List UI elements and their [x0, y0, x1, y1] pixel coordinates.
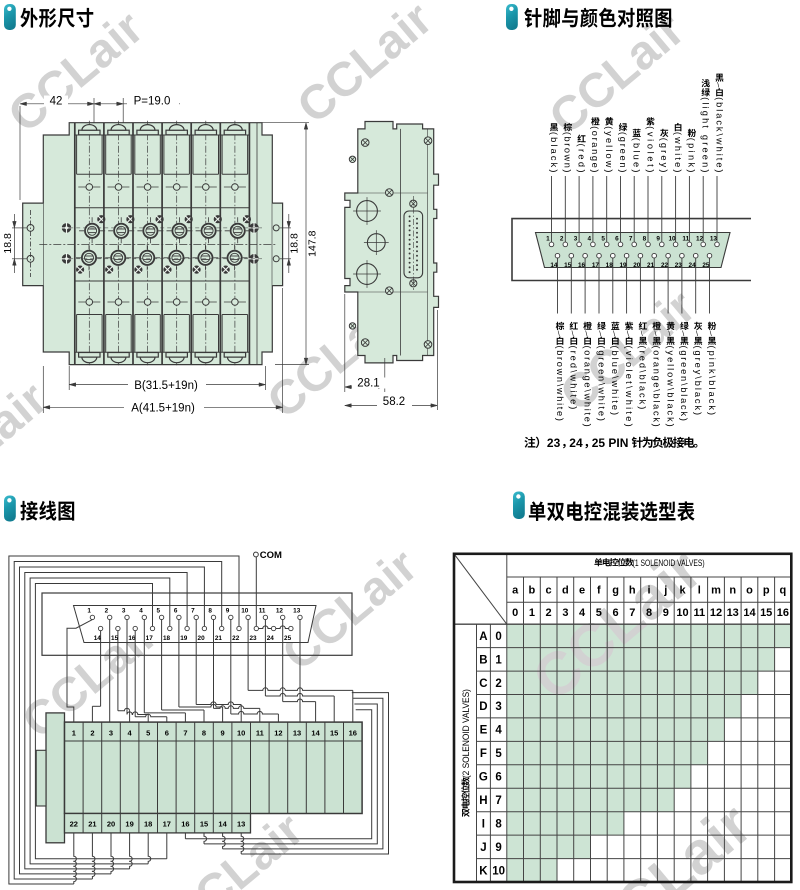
svg-text:(black\white): (black\white): [714, 97, 724, 172]
svg-text:o: o: [746, 585, 753, 597]
svg-text:B: B: [479, 654, 487, 666]
svg-text:28.1: 28.1: [357, 378, 379, 390]
svg-text:11: 11: [682, 236, 689, 243]
svg-text:5: 5: [601, 236, 605, 243]
svg-text:6: 6: [165, 729, 169, 738]
svg-text:(grey): (grey): [659, 138, 669, 173]
svg-text:21: 21: [88, 820, 96, 829]
svg-text:b: b: [529, 585, 536, 597]
svg-text:(grey\black): (grey\black): [693, 346, 703, 416]
svg-text:5: 5: [157, 608, 161, 615]
svg-text:C: C: [479, 678, 487, 690]
svg-text:3: 3: [562, 607, 568, 619]
svg-text:20: 20: [198, 635, 206, 642]
svg-text:15: 15: [564, 262, 572, 269]
svg-text:24: 24: [569, 436, 583, 450]
svg-text:3: 3: [574, 236, 578, 243]
svg-text:13: 13: [237, 820, 245, 829]
svg-text:(orange): (orange): [590, 126, 600, 172]
svg-text:8: 8: [646, 607, 652, 619]
svg-text:16: 16: [349, 729, 357, 738]
svg-text:14: 14: [550, 262, 558, 269]
svg-text:j: j: [663, 585, 667, 597]
svg-text:16: 16: [128, 635, 136, 642]
svg-text:I: I: [482, 818, 485, 830]
svg-text:15: 15: [200, 820, 208, 829]
svg-text:(red\black): (red\black): [638, 346, 648, 410]
svg-text:9: 9: [495, 842, 501, 854]
svg-text:a: a: [512, 585, 519, 597]
svg-text:P=19.0: P=19.0: [134, 95, 171, 107]
svg-text:15: 15: [760, 607, 772, 619]
svg-text:1: 1: [495, 654, 502, 666]
svg-text:7: 7: [183, 729, 187, 738]
svg-text:c: c: [546, 585, 552, 597]
svg-text:14: 14: [743, 607, 756, 619]
svg-text:15: 15: [111, 635, 119, 642]
svg-text:2: 2: [105, 608, 109, 615]
svg-text:A: A: [479, 631, 487, 643]
svg-text:d: d: [562, 585, 569, 597]
svg-text:23: 23: [249, 635, 257, 642]
svg-text:9: 9: [226, 608, 230, 615]
svg-text:CCLair: CCLair: [288, 0, 443, 134]
svg-text:6: 6: [495, 772, 501, 784]
svg-text:g: g: [612, 585, 619, 597]
svg-text:6: 6: [613, 607, 619, 619]
svg-text:H: H: [479, 795, 487, 807]
svg-text:0: 0: [495, 631, 501, 643]
svg-text:12: 12: [696, 236, 704, 243]
svg-text:23: 23: [675, 262, 683, 269]
svg-text:(pink): (pink): [687, 138, 697, 173]
svg-text:13: 13: [727, 607, 739, 619]
svg-text:CCLair: CCLair: [0, 1, 153, 143]
svg-text:12: 12: [274, 729, 282, 738]
svg-text:(white): (white): [673, 132, 683, 173]
svg-text:l: l: [698, 585, 701, 597]
svg-text:14: 14: [218, 820, 227, 829]
svg-text:1: 1: [87, 608, 91, 615]
svg-text:2: 2: [546, 607, 552, 619]
svg-text:19: 19: [180, 635, 188, 642]
svg-text:22: 22: [232, 635, 240, 642]
svg-text:m: m: [711, 585, 721, 597]
svg-text:q: q: [780, 585, 787, 597]
svg-text:18.8: 18.8: [289, 233, 301, 254]
svg-text:16: 16: [181, 820, 189, 829]
svg-text:11: 11: [693, 607, 705, 619]
svg-text:16: 16: [578, 262, 586, 269]
svg-text:14: 14: [94, 635, 102, 642]
svg-text:17: 17: [163, 820, 171, 829]
svg-text:19: 19: [619, 262, 627, 269]
svg-text:4: 4: [495, 725, 502, 737]
svg-text:25: 25: [284, 635, 292, 642]
svg-text:1: 1: [546, 236, 550, 243]
svg-text:(orange\black): (orange\black): [652, 346, 662, 427]
svg-text:12: 12: [710, 607, 722, 619]
svg-text:D: D: [479, 701, 487, 713]
svg-text:(green): (green): [618, 132, 628, 173]
svg-text:11: 11: [259, 608, 266, 615]
svg-text:9: 9: [663, 607, 669, 619]
svg-text:18: 18: [163, 635, 171, 642]
svg-text:(violet\white): (violet\white): [624, 346, 634, 427]
svg-text:15: 15: [330, 729, 338, 738]
svg-text:6: 6: [615, 236, 619, 243]
svg-text:(pink\black): (pink\black): [707, 346, 717, 416]
svg-text:7: 7: [629, 607, 635, 619]
svg-text:22: 22: [70, 820, 78, 829]
svg-text:p: p: [763, 585, 770, 597]
svg-text:n: n: [729, 585, 736, 597]
svg-text:3: 3: [109, 729, 113, 738]
svg-text:17: 17: [146, 635, 154, 642]
svg-text:14: 14: [311, 729, 320, 738]
svg-text:18.8: 18.8: [2, 233, 14, 254]
svg-text:CCLair: CCLair: [0, 372, 57, 514]
svg-text:1: 1: [72, 729, 76, 738]
svg-text:24: 24: [689, 262, 697, 269]
svg-text:9: 9: [221, 729, 225, 738]
svg-text:25 PIN: 25 PIN: [592, 436, 629, 450]
svg-text:8: 8: [495, 818, 502, 830]
svg-text:147.8: 147.8: [307, 230, 319, 256]
svg-text:18: 18: [144, 820, 152, 829]
svg-text:21: 21: [647, 262, 655, 269]
svg-text:(brown): (brown): [563, 132, 573, 173]
svg-text:4: 4: [579, 607, 586, 619]
svg-text:13: 13: [293, 608, 301, 615]
svg-text:(red): (red): [576, 144, 586, 173]
svg-text:k: k: [679, 585, 686, 597]
svg-text:18: 18: [606, 262, 614, 269]
svg-text:E: E: [480, 725, 488, 737]
svg-text:12: 12: [276, 608, 284, 615]
svg-text:f: f: [597, 585, 601, 597]
svg-text:7: 7: [629, 236, 633, 243]
svg-text:17: 17: [592, 262, 600, 269]
svg-text:7: 7: [495, 795, 501, 807]
svg-text:(brown\white): (brown\white): [555, 346, 565, 421]
svg-text:(violet): (violet): [645, 126, 655, 172]
svg-text:10: 10: [237, 729, 245, 738]
svg-text:2: 2: [90, 729, 94, 738]
svg-text:13: 13: [710, 236, 718, 243]
svg-text:8: 8: [643, 236, 647, 243]
svg-text:22: 22: [661, 262, 669, 269]
svg-text:42: 42: [50, 95, 63, 107]
svg-text:58.2: 58.2: [383, 396, 405, 408]
svg-text:2: 2: [560, 236, 564, 243]
svg-text:16: 16: [777, 607, 789, 619]
svg-text:J: J: [480, 842, 486, 854]
svg-text:COM: COM: [260, 550, 282, 561]
svg-text:(green\black): (green\black): [679, 346, 689, 421]
svg-text:3: 3: [122, 608, 126, 615]
svg-text:(red\white): (red\white): [569, 346, 579, 410]
svg-text:23: 23: [547, 436, 561, 450]
svg-text:5: 5: [596, 607, 602, 619]
svg-text:(yellow\black): (yellow\black): [665, 346, 675, 427]
svg-text:(yellow): (yellow): [604, 126, 614, 172]
svg-text:4: 4: [588, 236, 592, 243]
svg-text:11: 11: [256, 729, 264, 738]
svg-text:4: 4: [139, 608, 143, 615]
svg-text:3: 3: [495, 701, 501, 713]
svg-text:G: G: [479, 772, 488, 784]
svg-text:10: 10: [492, 865, 505, 877]
svg-text:20: 20: [633, 262, 641, 269]
svg-text:2: 2: [495, 678, 501, 690]
svg-text:13: 13: [293, 729, 301, 738]
svg-text:F: F: [480, 748, 487, 760]
svg-text:h: h: [629, 585, 636, 597]
svg-text:5: 5: [495, 748, 502, 760]
svg-text:7: 7: [191, 608, 195, 615]
svg-text:10: 10: [668, 236, 676, 243]
svg-text:1: 1: [529, 607, 535, 619]
svg-text:e: e: [579, 585, 585, 597]
svg-text:(black): (black): [549, 132, 559, 173]
svg-text:(1 SOLENOID VALVES): (1 SOLENOID VALVES): [633, 558, 705, 568]
svg-text:9: 9: [656, 236, 660, 243]
svg-text:25: 25: [702, 262, 710, 269]
svg-text:6: 6: [174, 608, 178, 615]
svg-text:0: 0: [512, 607, 518, 619]
svg-text:8: 8: [202, 729, 206, 738]
svg-text:8: 8: [208, 608, 212, 615]
svg-text:10: 10: [676, 607, 688, 619]
svg-text:A(41.5+19n): A(41.5+19n): [131, 403, 195, 415]
svg-text:(orange\white): (orange\white): [582, 346, 592, 427]
svg-text:20: 20: [107, 820, 115, 829]
svg-text:B(31.5+19n): B(31.5+19n): [134, 380, 198, 392]
svg-text:24: 24: [267, 635, 275, 642]
svg-text:(blue): (blue): [632, 138, 642, 173]
svg-text:19: 19: [125, 820, 133, 829]
svg-text:10: 10: [241, 608, 249, 615]
svg-text:i: i: [647, 585, 650, 597]
svg-text:21: 21: [215, 635, 223, 642]
svg-text:5: 5: [146, 729, 150, 738]
svg-text:(2 SOLENOID VALVES): (2 SOLENOID VALVES): [461, 689, 471, 778]
svg-text:(light green): (light green): [701, 97, 711, 172]
svg-text:K: K: [479, 865, 488, 877]
